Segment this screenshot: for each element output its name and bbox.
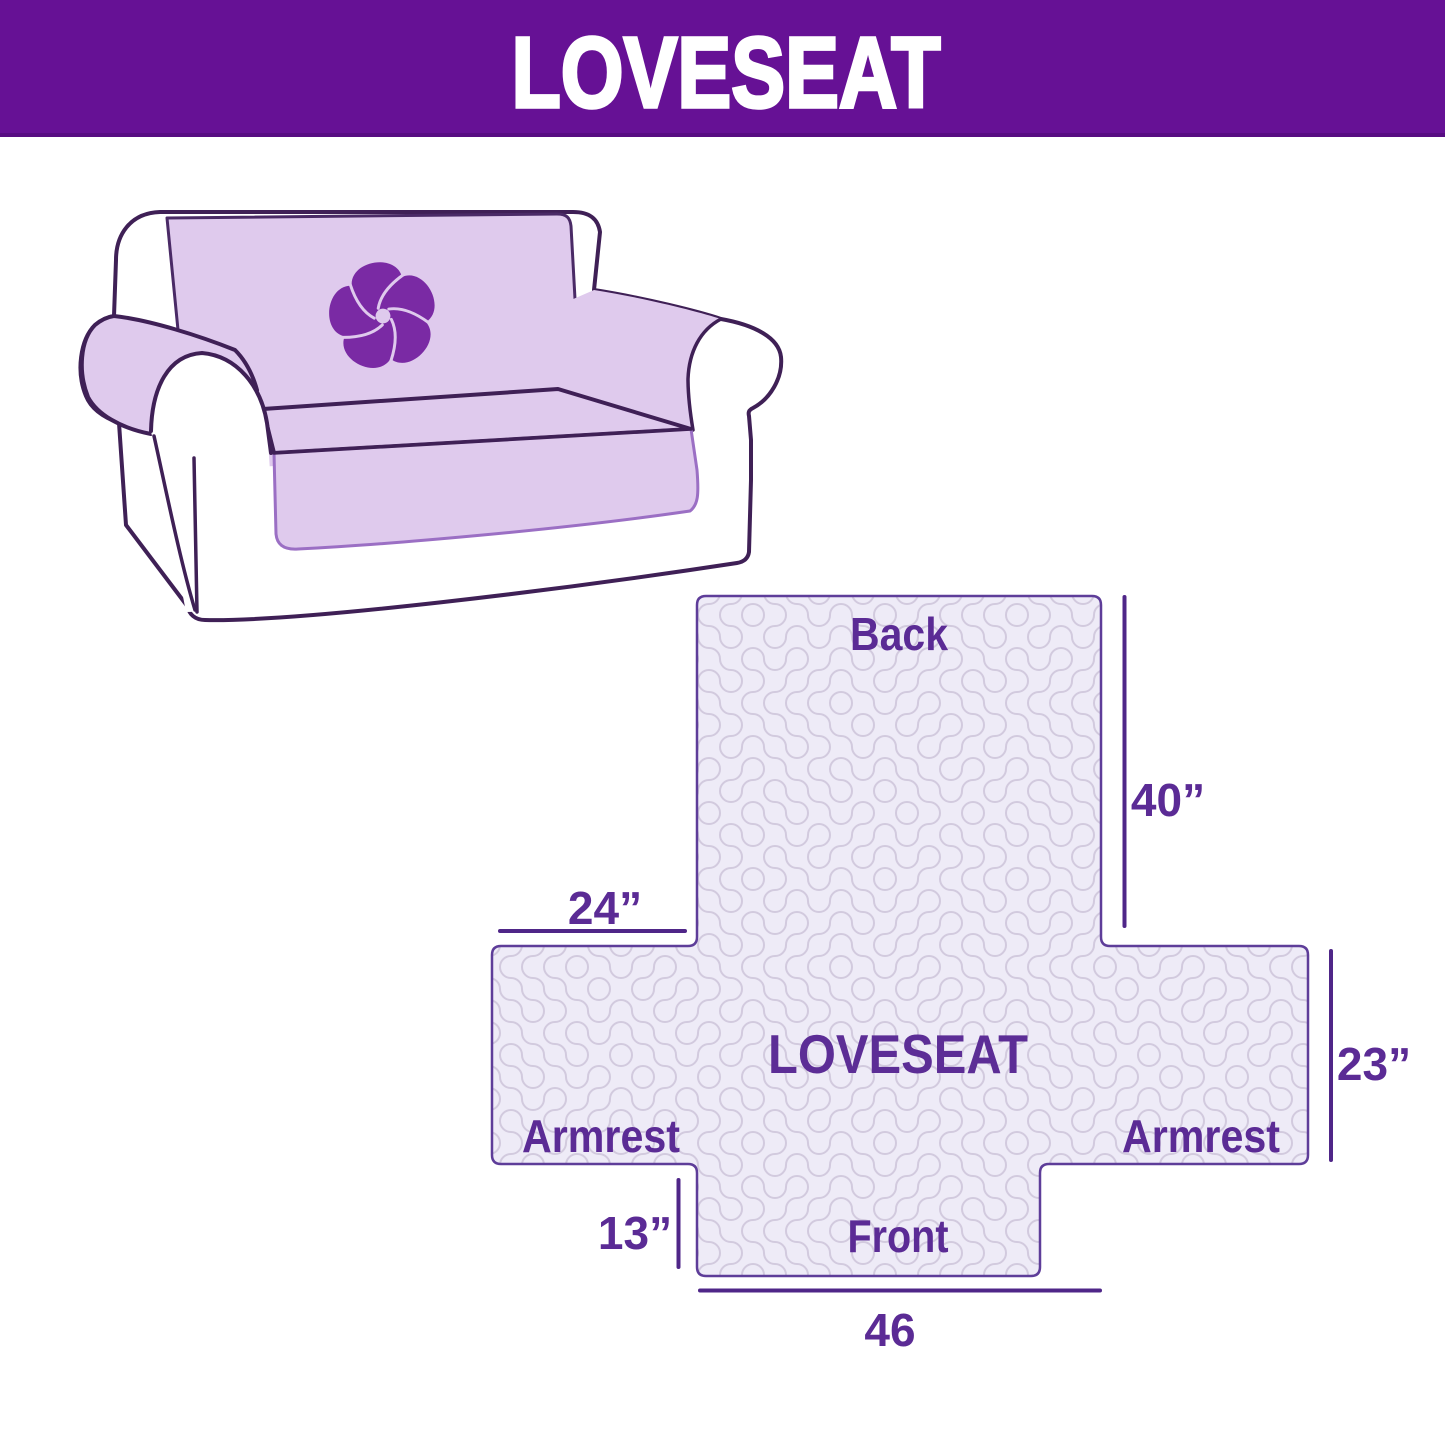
svg-text:Front: Front — [848, 1210, 949, 1262]
svg-text:46: 46 — [864, 1304, 915, 1356]
svg-text:Armrest: Armrest — [522, 1110, 680, 1162]
svg-text:Back: Back — [850, 608, 948, 660]
svg-text:13”: 13” — [598, 1207, 672, 1259]
svg-text:Armrest: Armrest — [1122, 1110, 1280, 1162]
svg-text:24”: 24” — [568, 882, 642, 934]
svg-text:23”: 23” — [1337, 1038, 1411, 1090]
svg-text:40”: 40” — [1131, 774, 1205, 826]
svg-text:LOVESEAT: LOVESEAT — [512, 17, 941, 129]
svg-text:LOVESEAT: LOVESEAT — [768, 1023, 1028, 1085]
